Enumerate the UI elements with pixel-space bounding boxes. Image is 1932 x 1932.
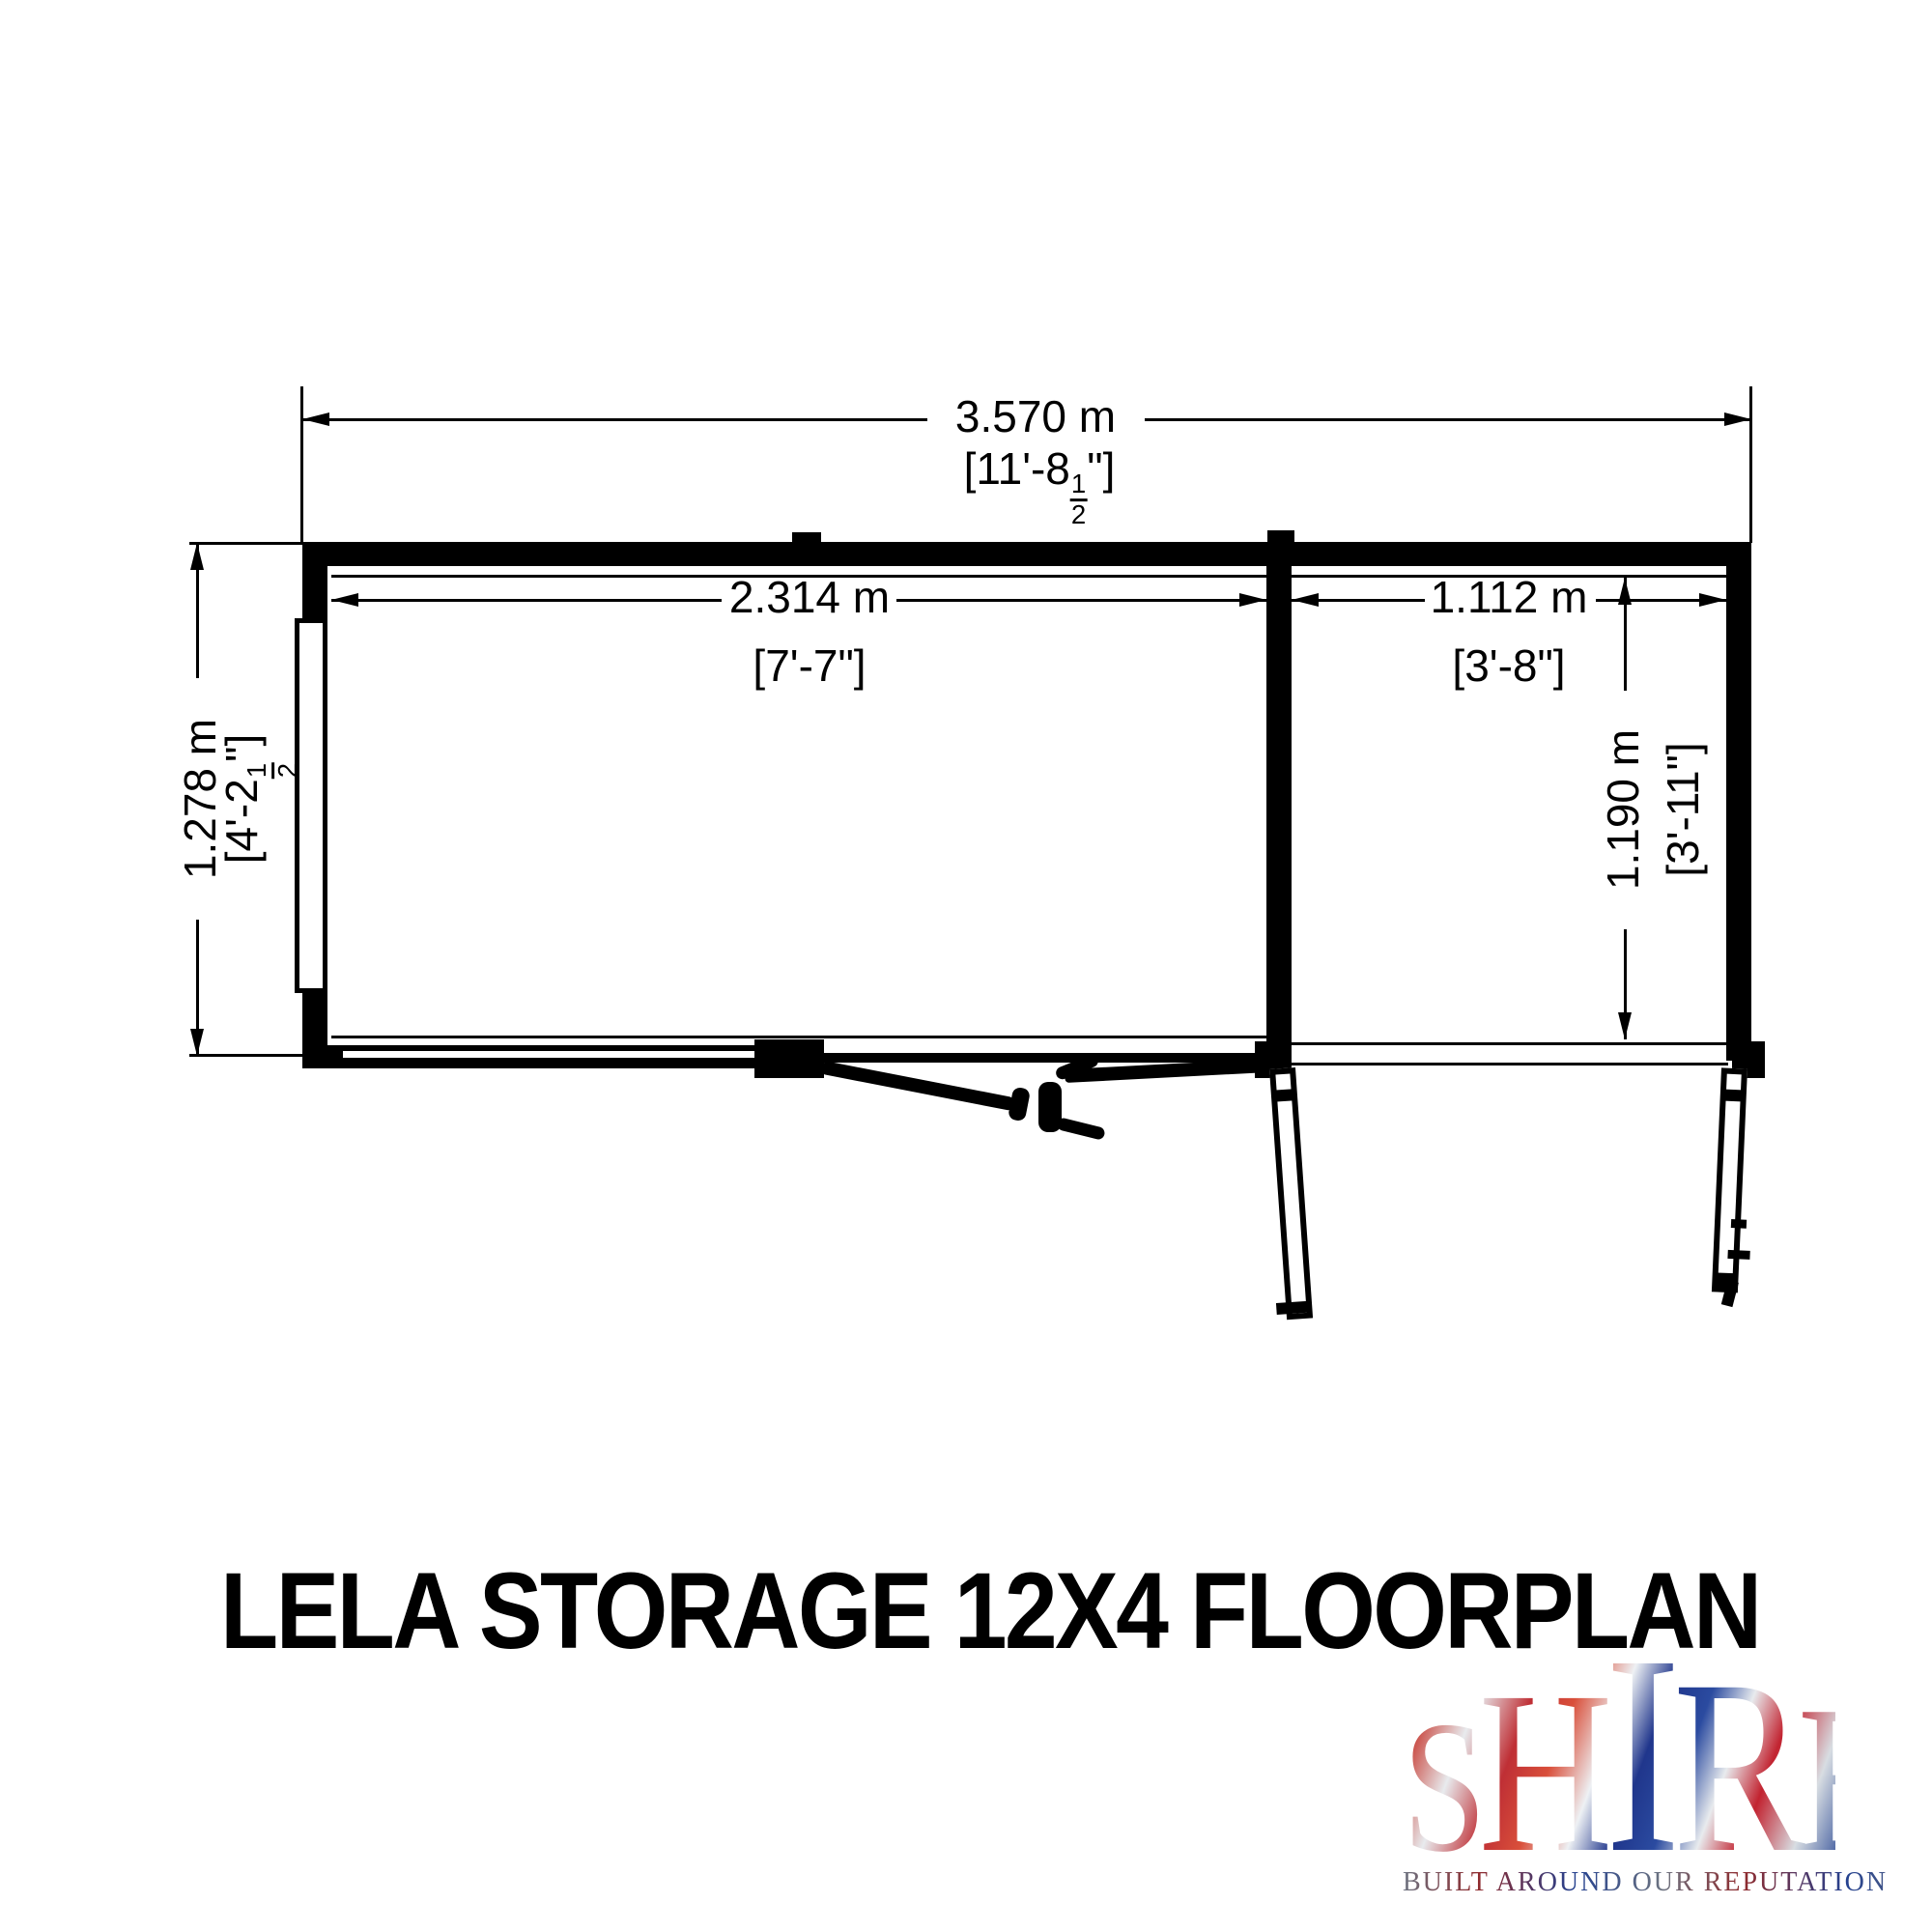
dim-left-bay-metric: 2.314 m	[729, 575, 890, 619]
dim-left-bay-line-right	[896, 599, 1266, 602]
bifold-threshold-line	[824, 1053, 1266, 1063]
extension-line-left-bottom	[189, 1054, 302, 1057]
dim-overall-width-line-right	[1145, 418, 1751, 421]
dim-overall-width-metric: 3.570 m	[955, 394, 1116, 439]
dim-right-depth-metric: 1.190 m	[1601, 729, 1645, 890]
dim-arrow-right-icon	[1239, 593, 1266, 607]
dim-arrow-up-icon	[1618, 578, 1632, 605]
right-opening-threshold-line	[1292, 1063, 1728, 1065]
dim-arrow-up-icon	[190, 543, 204, 570]
dim-right-bay-imperial: [3'-8"]	[1452, 643, 1565, 688]
extension-line-top-right	[1749, 386, 1752, 543]
dim-overall-depth-metric: 1.278 m	[178, 719, 222, 879]
wall-top-inner-face-line	[331, 575, 1726, 578]
wall-right	[1726, 542, 1751, 1061]
bifold-door-jamb	[754, 1039, 824, 1078]
wall-divider	[1266, 542, 1292, 1067]
logo-letter: H	[1479, 1643, 1605, 1900]
extension-line-top-left	[300, 386, 303, 543]
right-door-leaf-right	[1712, 1067, 1747, 1293]
logo-tagline: BUILT AROUND OUR REPUTATION	[1403, 1867, 1932, 1898]
left-wall-panel	[295, 618, 327, 993]
dim-left-bay-imperial: [7'-7"]	[753, 643, 866, 688]
logo-letter: R	[1673, 1629, 1798, 1904]
shire-logo: SHIRE	[1403, 1611, 1835, 1896]
wall-top	[302, 542, 1751, 566]
logo-letter: S	[1403, 1683, 1479, 1891]
bifold-leaf-end-cap	[1008, 1087, 1031, 1122]
right-door-leaf-left	[1269, 1067, 1313, 1320]
door-stay-nub	[1727, 1250, 1749, 1260]
dim-right-depth-imperial: [3'-11"]	[1661, 742, 1705, 876]
right-opening-threshold-line	[1292, 1042, 1728, 1045]
door-hinge-bar	[1725, 1090, 1743, 1102]
dim-arrow-down-icon	[190, 1029, 204, 1056]
wall-bottom-panel-stripe	[343, 1051, 768, 1058]
door-hinge-bar	[1276, 1089, 1293, 1101]
roof-joint-notch	[1267, 530, 1294, 544]
dim-arrow-right-icon	[1699, 593, 1726, 607]
logo-letter: I	[1605, 1596, 1673, 1912]
dim-right-bay-metric: 1.112 m	[1431, 575, 1588, 619]
door-foot-bracket	[1276, 1301, 1308, 1315]
logo-letter: E	[1798, 1663, 1893, 1896]
extension-line-left-top	[189, 542, 302, 545]
dim-arrow-right-icon	[1724, 412, 1751, 426]
dim-arrow-down-icon	[1618, 1012, 1632, 1039]
dim-arrow-left-icon	[1292, 593, 1319, 607]
roof-joint-notch	[792, 532, 821, 544]
door-handle-icon	[1056, 1117, 1106, 1141]
floorplan-canvas: 3.570 m [11'-812"] 1.278 m [4'-212"] 2.3…	[0, 0, 1932, 1932]
floor-edge-line	[331, 1036, 1266, 1038]
dim-overall-width-line-left	[302, 418, 927, 421]
dim-arrow-left-icon	[302, 412, 329, 426]
door-stay-nub	[1731, 1219, 1747, 1229]
bifold-door-leaf-left	[821, 1061, 1013, 1111]
dim-overall-depth-imperial: [4'-212"]	[219, 734, 302, 865]
dim-overall-width-imperial: [11'-812"]	[964, 446, 1116, 529]
dim-left-bay-line-left	[331, 599, 722, 602]
dim-arrow-left-icon	[331, 593, 358, 607]
